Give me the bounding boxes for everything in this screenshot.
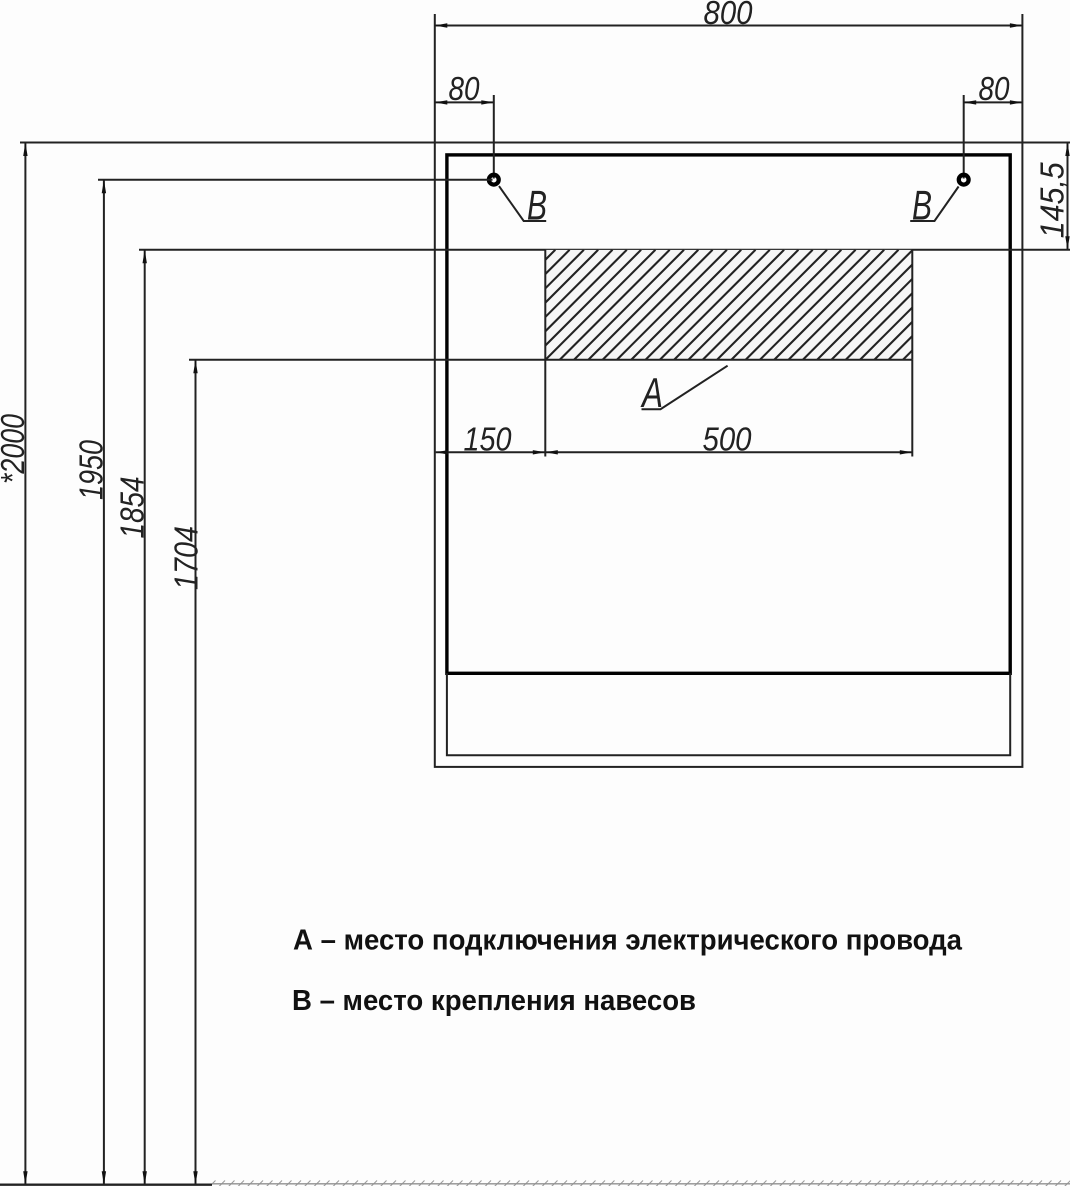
svg-text:500: 500 [703,420,753,457]
svg-text:80: 80 [449,70,481,107]
svg-text:1950: 1950 [73,439,110,500]
svg-text:145,5: 145,5 [1034,162,1070,239]
svg-text:В – место крепления навесов: В – место крепления навесов [292,985,696,1017]
svg-text:150: 150 [464,420,513,457]
svg-text:*2000: *2000 [0,413,31,484]
svg-text:1854: 1854 [114,477,151,539]
svg-text:А – место подключения электрич: А – место подключения электрического про… [293,925,963,957]
svg-text:80: 80 [979,70,1011,107]
svg-text:А: А [640,369,663,416]
svg-text:В: В [912,182,932,229]
svg-text:В: В [527,182,547,229]
svg-text:800: 800 [704,0,754,31]
svg-text:1704: 1704 [168,526,205,590]
